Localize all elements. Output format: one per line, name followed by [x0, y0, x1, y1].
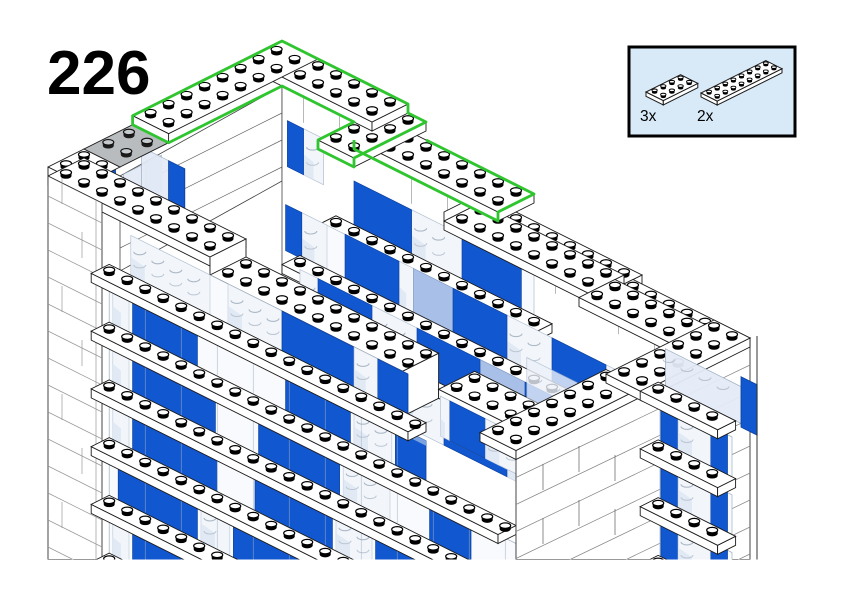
svg-text:3x: 3x [640, 108, 657, 125]
svg-text:226: 226 [47, 39, 150, 108]
svg-text:2x: 2x [697, 108, 714, 125]
